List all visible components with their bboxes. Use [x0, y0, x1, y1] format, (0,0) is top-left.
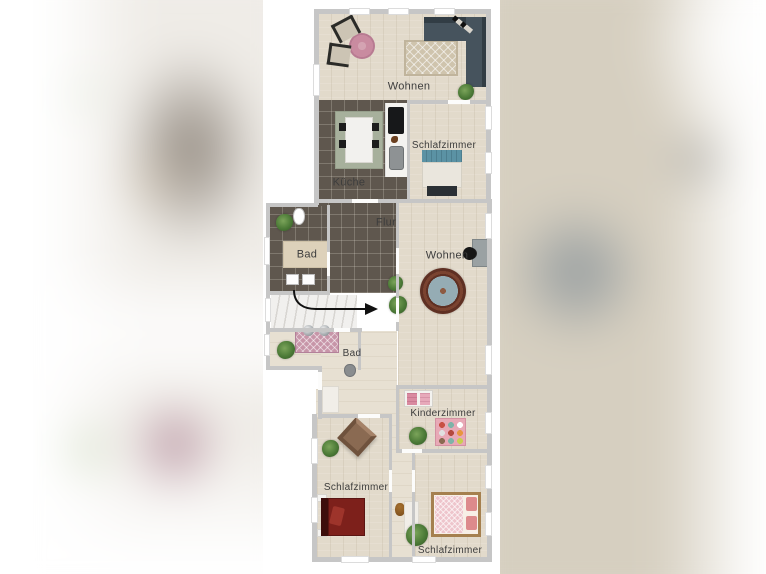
room-label-kinderzimmer: Kinderzimmer	[410, 409, 475, 419]
wall-segment	[396, 385, 399, 453]
bed-mattress	[422, 162, 462, 188]
window-opening	[434, 8, 455, 15]
bed-double	[422, 150, 462, 196]
window-opening	[412, 556, 436, 563]
bed-headboard	[321, 498, 328, 536]
cooktop	[388, 107, 404, 134]
dresser-drawer-pink	[407, 393, 417, 405]
wall-segment	[327, 205, 330, 293]
wall-segment	[312, 414, 317, 562]
chair	[372, 140, 379, 148]
bed-pillow	[466, 516, 477, 530]
dresser-drawer-pink	[420, 393, 430, 405]
floor-plan-image: Wohnen Küche Schlafzimmer Flur Bad	[0, 0, 766, 574]
bed-pillow	[466, 497, 477, 511]
room-label-wohnen-top: Wohnen	[388, 82, 431, 93]
wall-segment	[315, 199, 491, 203]
bed-duvet	[435, 496, 463, 533]
window-opening	[388, 8, 409, 15]
door-opening	[334, 328, 350, 332]
room-label-schlafzimmer-right: Schlafzimmer	[418, 546, 482, 556]
sofa-sectional	[424, 17, 488, 87]
door-opening	[402, 449, 422, 453]
dresser	[404, 390, 433, 407]
room-label-bad-mid: Bad	[297, 250, 317, 261]
wall-segment	[407, 100, 410, 203]
window-opening	[264, 334, 270, 356]
room-label-schlafzimmer-top: Schlafzimmer	[412, 141, 476, 151]
kids-play-rug	[435, 418, 466, 446]
room-label-wohnen-mid: Wohnen	[426, 251, 469, 262]
stair-direction-arrow	[282, 288, 382, 318]
bed-double-pink	[431, 492, 481, 537]
window-opening	[311, 438, 318, 464]
wall-segment	[314, 9, 319, 205]
door-opening	[412, 470, 415, 492]
bathroom-sink	[286, 274, 299, 285]
door-opening	[352, 199, 378, 203]
bed-double-red	[321, 498, 365, 536]
window-opening	[485, 106, 492, 130]
room-label-kueche: Küche	[333, 178, 366, 189]
window-opening	[485, 512, 492, 536]
wall-segment	[318, 414, 392, 418]
wall-segment	[266, 203, 318, 207]
floor-plan: Wohnen Küche Schlafzimmer Flur Bad	[0, 0, 766, 574]
door-opening	[318, 372, 322, 390]
door-opening	[396, 298, 399, 322]
round-rug-pink	[349, 33, 375, 59]
wall-segment	[487, 199, 492, 562]
window-opening	[485, 345, 492, 375]
chair	[339, 123, 346, 131]
window-opening	[313, 64, 320, 96]
bed-headboard	[422, 150, 462, 162]
window-opening	[341, 556, 369, 563]
window-opening	[485, 213, 492, 239]
toilet	[344, 364, 356, 377]
door-opening	[358, 414, 380, 418]
window-opening	[485, 465, 492, 489]
window-opening	[264, 237, 270, 265]
kitchen-sink	[389, 146, 404, 170]
round-ornate-rug	[420, 268, 466, 314]
armchair	[327, 43, 352, 68]
chair	[372, 123, 379, 131]
room-label-schlafzimmer-left: Schlafzimmer	[324, 483, 388, 493]
chair	[339, 140, 346, 148]
window-opening	[485, 412, 492, 434]
toilet	[293, 208, 305, 225]
room-label-bad-lower: Bad	[343, 349, 362, 359]
decor-item	[391, 136, 398, 143]
wall-segment	[396, 385, 490, 389]
dining-table	[345, 117, 373, 163]
window-opening	[311, 497, 318, 523]
door-opening	[448, 100, 470, 104]
window-opening	[349, 8, 370, 15]
wall-segment	[266, 366, 322, 370]
wall-segment	[312, 557, 492, 562]
runner-rug	[322, 386, 339, 413]
bathroom-sink	[302, 274, 315, 285]
door-opening	[327, 252, 330, 276]
door-opening	[396, 248, 399, 274]
door-opening	[389, 470, 392, 492]
room-label-flur: Flur	[376, 218, 396, 229]
window-opening	[265, 298, 271, 322]
wall-segment	[412, 452, 415, 562]
bed-footbench	[427, 186, 457, 196]
window-opening	[485, 152, 492, 174]
